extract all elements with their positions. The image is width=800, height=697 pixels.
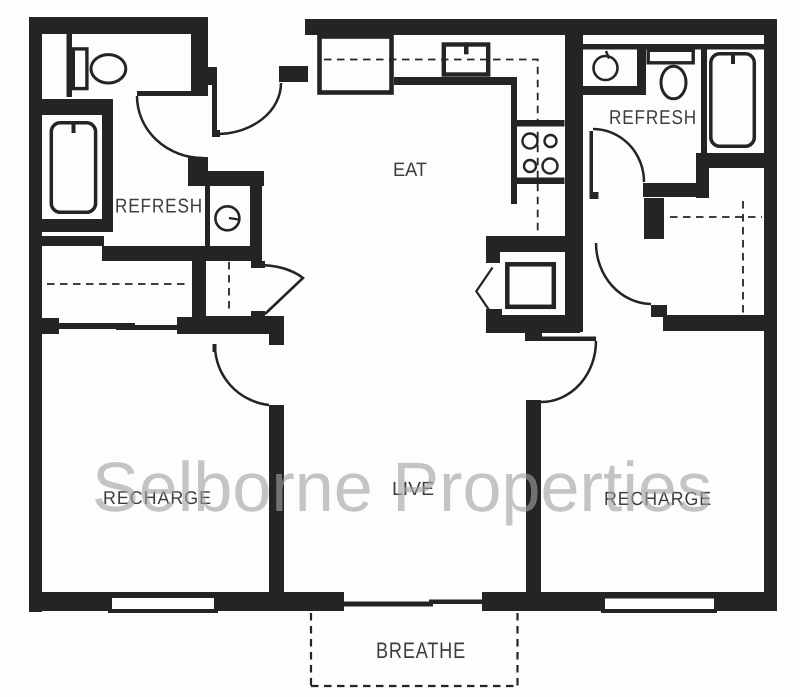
svg-text:Selborne Properties: Selborne Properties [92,448,712,526]
svg-text:REFRESH: REFRESH [115,196,203,218]
svg-text:REFRESH: REFRESH [609,107,697,129]
svg-text:BREATHE: BREATHE [376,638,466,663]
svg-text:EAT: EAT [393,159,427,181]
